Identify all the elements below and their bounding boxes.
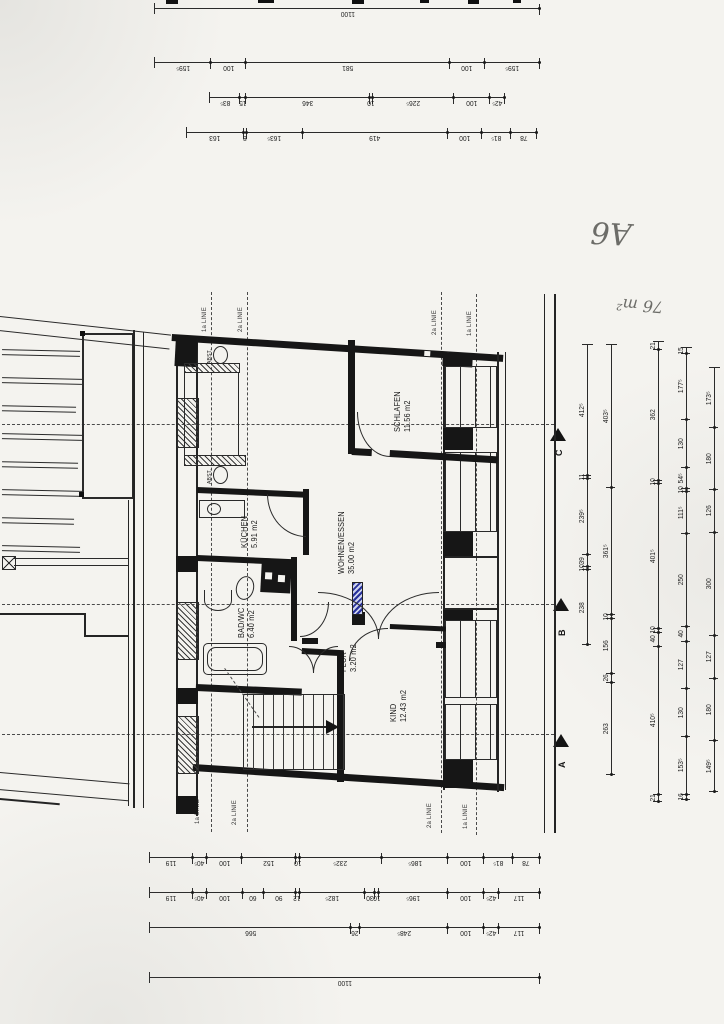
dimension-row: 11742⁵100196⁵1030182⁵12906010040⁵119 [150,892,540,914]
room-label-flur: FLUR3.20 m2 [339,642,358,672]
window [445,704,497,760]
dimension-row: 1100 [150,977,540,999]
linie-label: 2a LINIE [232,800,238,825]
section-letter-b: B [557,630,567,637]
scan-artifact [513,0,521,3]
dimension-row: 1100 [155,8,540,30]
closet [184,372,239,456]
room-label-bad-wc: BAD/WC6.40 m2 [237,605,256,638]
bottom-dimension-block: 7881⁵100186⁵232⁵1015210040⁵11911742⁵1001… [150,845,540,1005]
linie-label: 2a LINIE [432,310,438,335]
balcony-door-jamb [445,556,497,558]
window [445,620,497,698]
room-label-schlafen: SCHLAFEN11.56 m2 [393,388,412,432]
linie-label: 1a LINIE [463,804,469,829]
wall-schlafen-left [348,340,355,454]
stair-direction-arrow [326,720,339,734]
right-dim-chain-4: 16153⁵13012740250111⁵1054⁵130177⁵15 [674,348,687,800]
chimney [260,558,292,594]
right-dim-chain-3: 21410⁵4010401⁵1036221 [646,342,659,802]
dimension-row: 159⁵100581100159⁵ [155,62,540,84]
kitchen-counter [199,500,245,518]
section-line-b [2,604,554,605]
room-label-abst-2: ABST. [206,468,216,484]
right-wall-outer [497,352,499,792]
linie-label: 1a LINIE [202,307,208,332]
room-label-abst-1: ABST. [206,348,216,364]
washbasin [233,574,256,602]
dimension-row: 42⁵100226⁵103461583⁵ [210,97,505,119]
balcony-door-jamb [445,608,497,610]
left-wall-window [177,716,199,774]
dimension-row: 7881⁵100419163⁵8163 [187,132,537,154]
basin-half [204,590,232,611]
wall-bad-right [291,557,297,641]
dimension-row: 7881⁵100186⁵232⁵1015210040⁵119 [150,857,540,879]
right-dim-chain-5: 149⁵180127300126180173⁵ [702,368,715,792]
section-letter-a: A [557,762,567,769]
right-dim-chain-1: 2381039239⁵11412⁵ [575,345,588,645]
building-line-2a-right [441,292,442,833]
linie-label: 1a LINIE [467,311,473,336]
linie-label: 2a LINIE [427,803,433,828]
light-partition [184,455,246,466]
window [445,452,497,532]
handwritten-area-note: 76 m² [585,271,666,316]
room-label-kind: KIND12.43 m2 [389,687,408,722]
window [445,366,497,428]
room-label-kueche: KÜCHEN5.91 m2 [240,513,259,548]
dimension-row: 11742⁵100248⁵26566 [150,927,540,949]
right-dim-chain-2: 2632615610361⁵403⁵ [599,345,612,775]
section-letter-c: C [554,450,564,457]
section-arrow-c [550,428,566,441]
door-arc-kueche [267,494,306,537]
stair-direction-line [252,726,326,728]
top-dimension-block: 1100159⁵100581100159⁵42⁵100226⁵103461583… [155,4,540,154]
scanned-floor-plan-sheet: 1100159⁵100581100159⁵42⁵100226⁵103461583… [0,0,724,1024]
scan-artifact [420,0,429,3]
handwritten-sheet-label: A6 [587,191,634,251]
linie-label: 2a LINIE [238,307,244,332]
scan-artifact [258,0,274,3]
bathtub [203,643,267,675]
room-label-wohnen-essen: WOHNEN/ESSEN35.00 m2 [337,506,356,574]
balcony-body [82,333,134,499]
left-wall-window [177,602,199,660]
